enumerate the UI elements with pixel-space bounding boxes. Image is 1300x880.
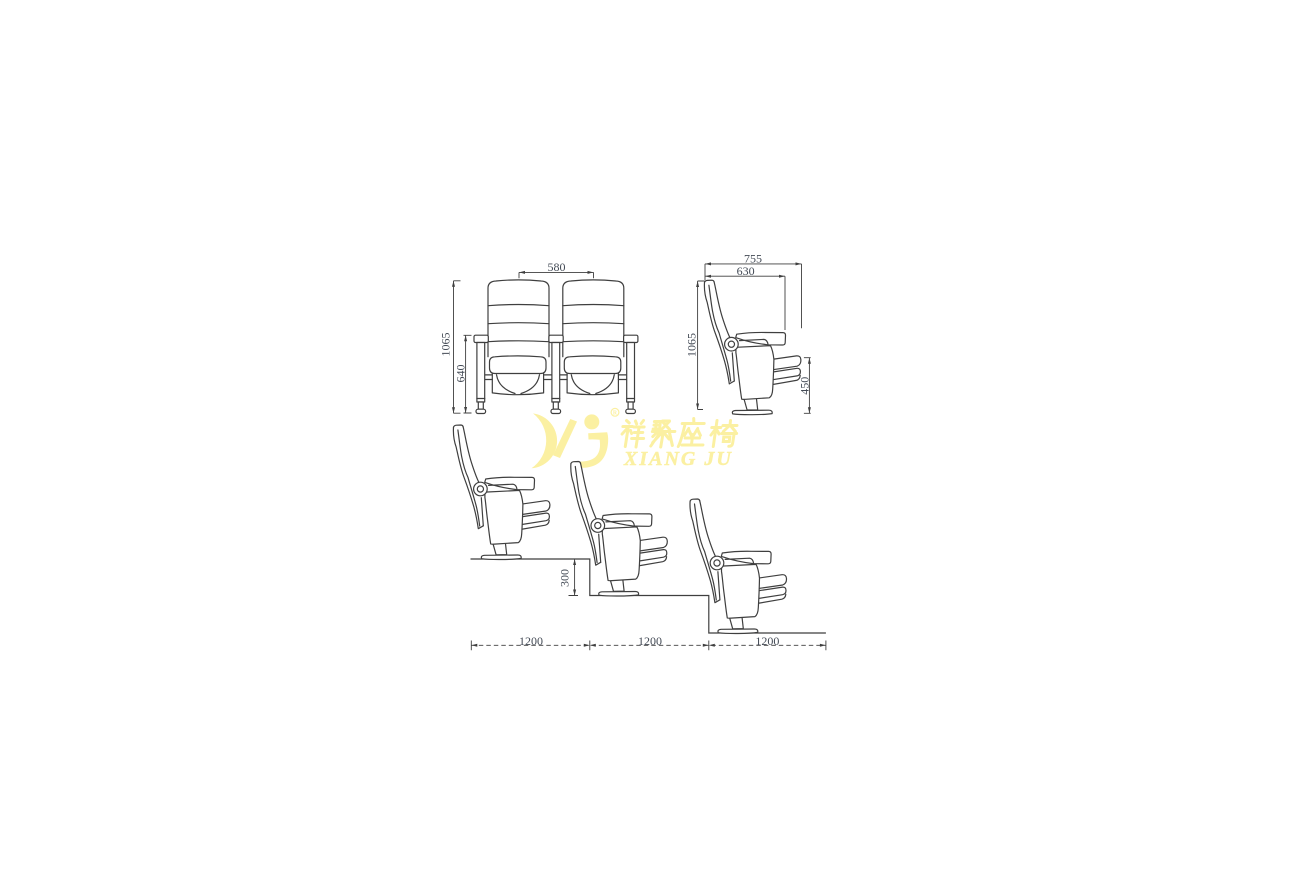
svg-text:1065: 1065: [685, 333, 699, 357]
svg-text:640: 640: [453, 365, 467, 383]
svg-text:630: 630: [737, 264, 755, 278]
svg-text:1065: 1065: [439, 333, 453, 357]
svg-text:1200: 1200: [755, 634, 779, 648]
svg-text:580: 580: [548, 260, 566, 274]
svg-text:450: 450: [797, 377, 811, 395]
svg-text:1200: 1200: [519, 634, 543, 648]
svg-text:XIANG JU: XIANG JU: [623, 448, 733, 470]
svg-text:300: 300: [558, 569, 572, 587]
svg-text:1200: 1200: [638, 634, 662, 648]
